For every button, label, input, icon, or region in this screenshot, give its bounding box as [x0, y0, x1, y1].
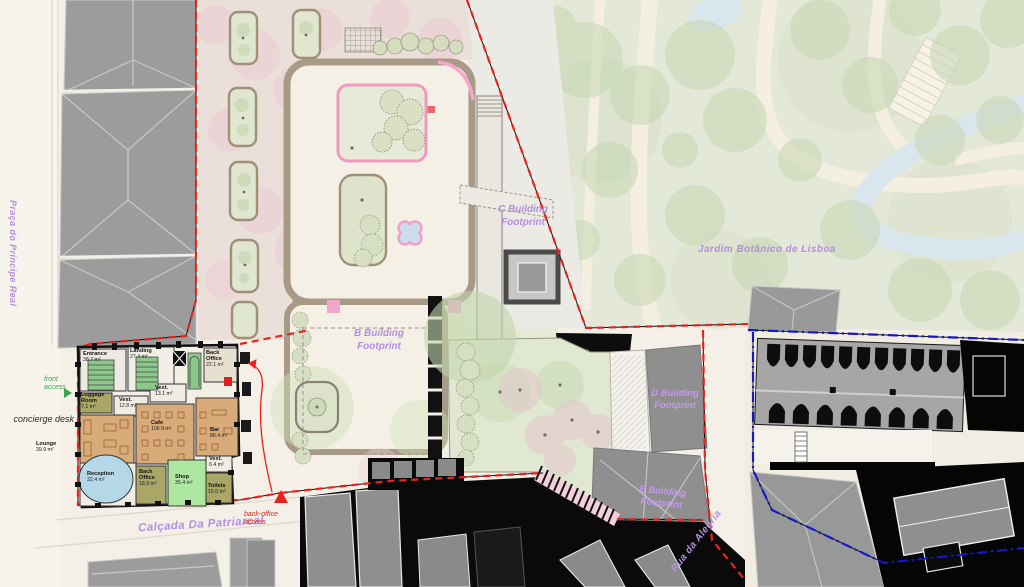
praca-street [0, 0, 60, 587]
d-building [646, 345, 707, 452]
city-buildings-west [58, 0, 196, 348]
fountain [399, 222, 422, 245]
fire-equipment [224, 377, 232, 386]
arcade-building [755, 338, 966, 431]
hotel-floorplan [75, 341, 240, 508]
site-plan-drawing [0, 0, 1024, 587]
reception-desk [79, 455, 133, 503]
stair-ladder [795, 432, 807, 462]
elevator [173, 351, 186, 366]
site-plan: Praça do Príncipe Real Calçada Da Patria… [0, 0, 1024, 587]
